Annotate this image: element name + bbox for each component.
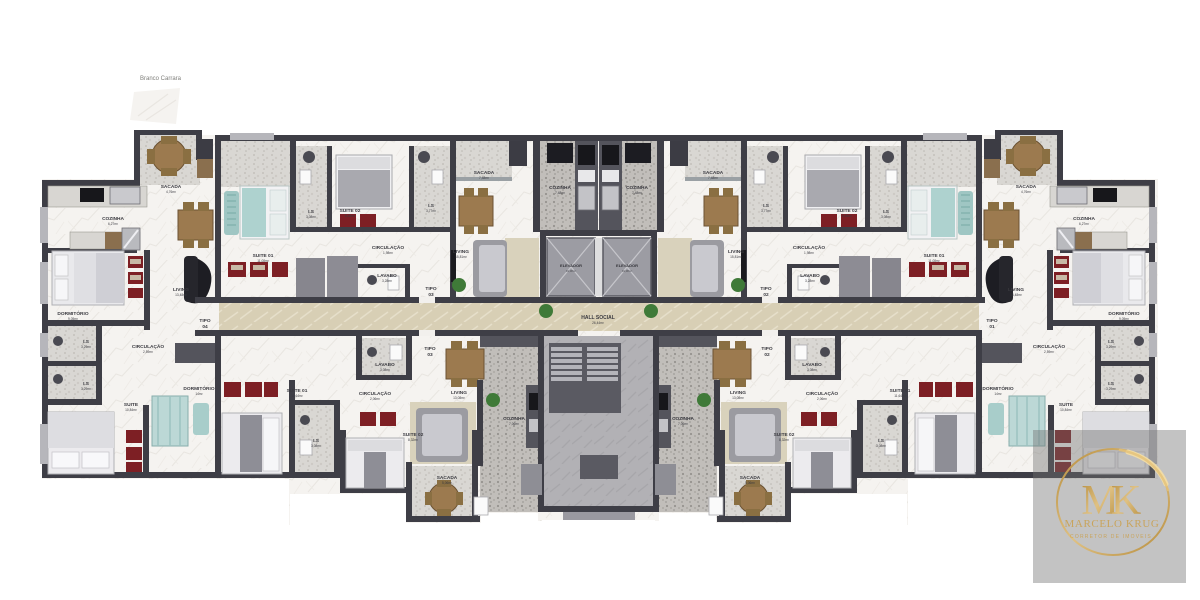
svg-text:Branco Carrara: Branco Carrara bbox=[140, 76, 182, 82]
svg-text:TIPO: TIPO bbox=[760, 286, 771, 292]
svg-text:4,76m²: 4,76m² bbox=[1021, 190, 1031, 194]
svg-text:6,27m²: 6,27m² bbox=[108, 222, 118, 226]
svg-text:CORRETOR DE IMOVEIS: CORRETOR DE IMOVEIS bbox=[1070, 534, 1152, 540]
svg-text:2,06m²: 2,06m² bbox=[370, 397, 380, 401]
svg-text:TIPO: TIPO bbox=[424, 346, 435, 352]
svg-text:11,64m²: 11,64m² bbox=[894, 394, 905, 398]
svg-text:CIRCULAÇÃO: CIRCULAÇÃO bbox=[806, 390, 839, 397]
svg-text:3,77m²: 3,77m² bbox=[426, 209, 436, 213]
svg-text:03: 03 bbox=[428, 292, 434, 298]
svg-text:ELEVADOR: ELEVADOR bbox=[616, 263, 638, 268]
svg-text:3,08m²: 3,08m² bbox=[306, 215, 316, 219]
svg-text:2,06m²: 2,06m² bbox=[817, 397, 827, 401]
svg-text:14m²: 14m² bbox=[195, 392, 202, 396]
svg-text:3,29m²: 3,29m² bbox=[1106, 345, 1116, 349]
svg-text:5,06m²: 5,06m² bbox=[442, 481, 452, 485]
svg-text:3,28m²: 3,28m² bbox=[382, 279, 392, 283]
svg-text:3,29m²: 3,29m² bbox=[81, 387, 91, 391]
svg-text:TIPO: TIPO bbox=[986, 318, 997, 324]
svg-text:7,06m²: 7,06m² bbox=[509, 422, 519, 426]
svg-text:1,98m²: 1,98m² bbox=[804, 251, 814, 255]
svg-text:8,32m²: 8,32m² bbox=[779, 438, 789, 442]
svg-text:13,08m²: 13,08m² bbox=[453, 396, 465, 400]
svg-text:15,81m²: 15,81m² bbox=[730, 255, 742, 259]
svg-text:10,84m²: 10,84m² bbox=[125, 408, 137, 412]
svg-text:10,84m²: 10,84m² bbox=[1060, 408, 1072, 412]
svg-text:03: 03 bbox=[427, 352, 433, 358]
svg-text:3,08m²: 3,08m² bbox=[311, 444, 321, 448]
svg-text:CIRCULAÇÃO: CIRCULAÇÃO bbox=[793, 244, 826, 251]
svg-text:3,08m²: 3,08m² bbox=[881, 215, 891, 219]
svg-text:ELEVADOR: ELEVADOR bbox=[560, 263, 582, 268]
svg-text:7,48m²: 7,48m² bbox=[479, 176, 489, 180]
svg-text:15,81m²: 15,81m² bbox=[455, 255, 467, 259]
svg-text:26,44m²: 26,44m² bbox=[592, 321, 604, 325]
svg-text:TIPO: TIPO bbox=[199, 318, 210, 324]
svg-text:02: 02 bbox=[764, 352, 770, 358]
svg-text:01: 01 bbox=[989, 324, 995, 330]
svg-text:14m²: 14m² bbox=[994, 392, 1001, 396]
svg-text:11,08m²: 11,08m² bbox=[257, 259, 268, 263]
svg-text:4,76m²: 4,76m² bbox=[166, 190, 176, 194]
svg-text:8,45m²: 8,45m² bbox=[345, 214, 355, 218]
svg-text:6,27m²: 6,27m² bbox=[1079, 222, 1089, 226]
svg-text:7,48m²: 7,48m² bbox=[555, 191, 565, 195]
svg-text:13,48m²: 13,48m² bbox=[175, 293, 187, 297]
svg-text:CIRCULAÇÃO: CIRCULAÇÃO bbox=[359, 390, 392, 397]
svg-text:8,32m²: 8,32m² bbox=[408, 438, 418, 442]
svg-text:02: 02 bbox=[763, 292, 769, 298]
svg-text:1,98m²: 1,98m² bbox=[383, 251, 393, 255]
svg-text:13,08m²: 13,08m² bbox=[732, 396, 744, 400]
svg-text:7,06m²: 7,06m² bbox=[678, 422, 688, 426]
svg-text:9,05m²: 9,05m² bbox=[68, 317, 78, 321]
svg-text:2,59m²: 2,59m² bbox=[1044, 350, 1054, 354]
svg-text:CIRCULAÇÃO: CIRCULAÇÃO bbox=[132, 343, 165, 350]
svg-text:01,08m²: 01,08m² bbox=[622, 269, 632, 273]
svg-text:13,48m²: 13,48m² bbox=[1010, 293, 1022, 297]
svg-text:CIRCULAÇÃO: CIRCULAÇÃO bbox=[372, 244, 405, 251]
svg-text:3,28m²: 3,28m² bbox=[805, 279, 815, 283]
svg-text:3,08m²: 3,08m² bbox=[876, 444, 886, 448]
svg-text:5,06m²: 5,06m² bbox=[745, 481, 755, 485]
svg-text:7,48m²: 7,48m² bbox=[708, 176, 718, 180]
svg-text:MARCELO KRUG: MARCELO KRUG bbox=[1065, 518, 1160, 530]
svg-text:11,08m²: 11,08m² bbox=[928, 259, 939, 263]
svg-text:3,08m²: 3,08m² bbox=[380, 368, 390, 372]
svg-text:3,77m²: 3,77m² bbox=[761, 209, 771, 213]
svg-text:3,08m²: 3,08m² bbox=[807, 368, 817, 372]
svg-text:3,29m²: 3,29m² bbox=[1106, 387, 1116, 391]
svg-text:11,64m²: 11,64m² bbox=[291, 394, 302, 398]
svg-text:2,59m²: 2,59m² bbox=[143, 350, 153, 354]
svg-text:04: 04 bbox=[202, 324, 208, 330]
svg-text:8,45m²: 8,45m² bbox=[842, 214, 852, 218]
svg-text:3,29m²: 3,29m² bbox=[81, 345, 91, 349]
svg-text:9,05m²: 9,05m² bbox=[1119, 317, 1129, 321]
svg-text:TIPO: TIPO bbox=[761, 346, 772, 352]
svg-text:01,08m²: 01,08m² bbox=[566, 269, 576, 273]
svg-text:7,48m²: 7,48m² bbox=[632, 191, 642, 195]
svg-text:TIPO: TIPO bbox=[425, 286, 436, 292]
svg-text:CIRCULAÇÃO: CIRCULAÇÃO bbox=[1033, 343, 1066, 350]
